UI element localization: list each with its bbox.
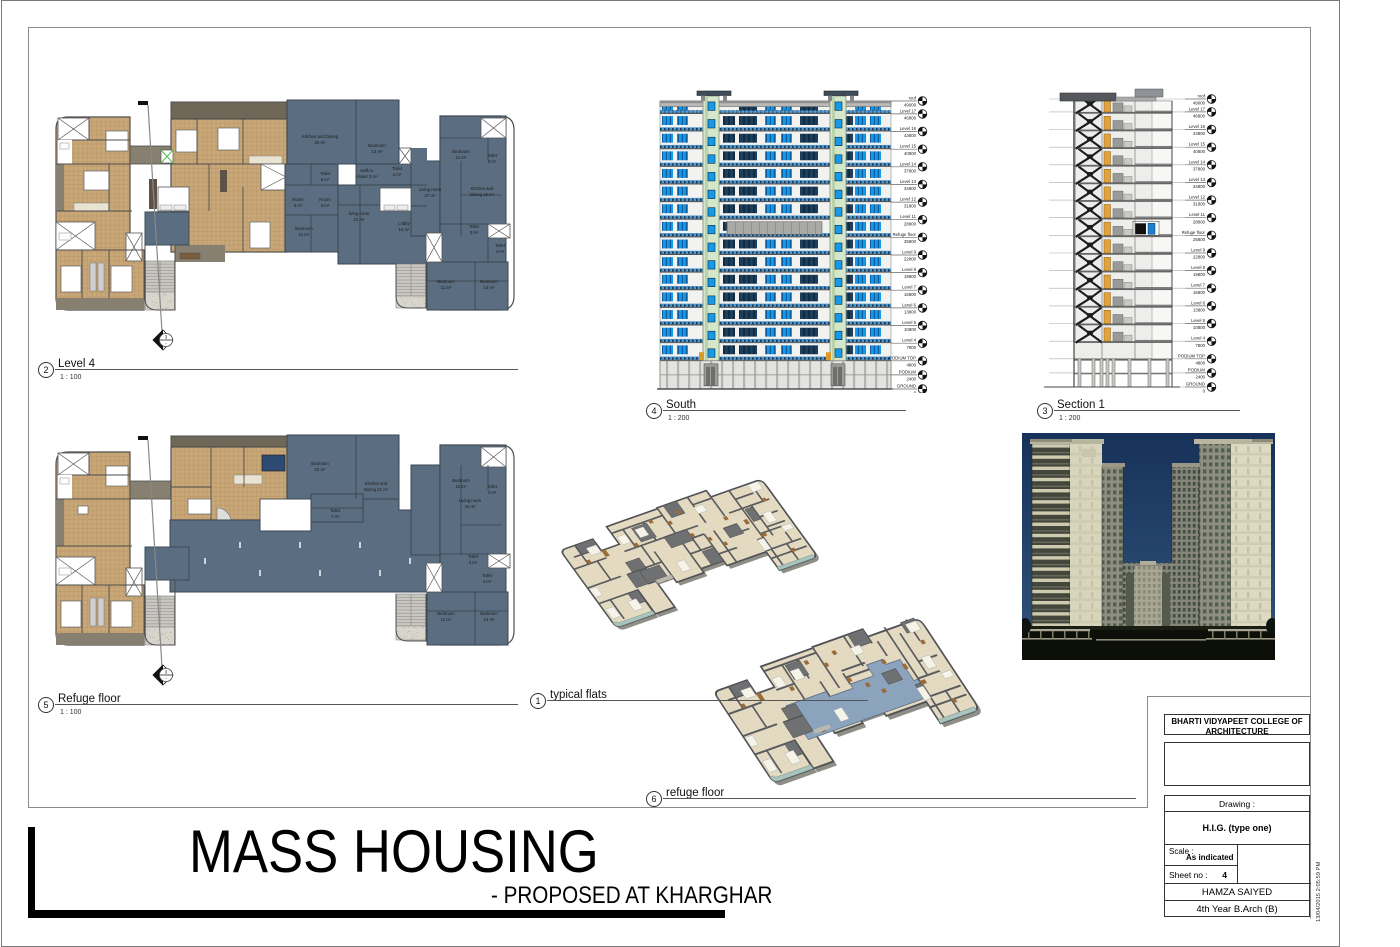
svg-text:10 m²: 10 m²	[399, 227, 411, 232]
svg-text:Level 15: Level 15	[1189, 142, 1206, 147]
svg-text:Level 11: Level 11	[900, 214, 917, 219]
svg-text:roof: roof	[1198, 94, 1206, 99]
svg-text:2: 2	[43, 365, 48, 375]
svg-text:Level 4: Level 4	[1191, 336, 1205, 341]
svg-text:44 m²: 44 m²	[465, 504, 477, 509]
svg-text:Level 5: Level 5	[902, 320, 916, 325]
svg-text:11 m²: 11 m²	[456, 155, 467, 160]
svg-text:Living room: Living room	[459, 498, 482, 503]
svg-text:25800: 25800	[904, 239, 917, 244]
svg-text:25800: 25800	[1193, 237, 1206, 242]
svg-text:16800: 16800	[904, 292, 917, 297]
svg-text:refuge floor: refuge floor	[666, 787, 724, 799]
svg-text:0: 0	[1203, 389, 1206, 393]
svg-text:Bedroom: Bedroom	[295, 226, 313, 231]
svg-text:Toilet: Toilet	[469, 224, 480, 229]
svg-text:Bedroom: Bedroom	[452, 478, 470, 483]
svg-text:28800: 28800	[1193, 219, 1206, 224]
svg-text:Level 6: Level 6	[1191, 300, 1205, 305]
svg-text:PODIUM: PODIUM	[1188, 367, 1206, 372]
svg-text:4 m²: 4 m²	[483, 579, 492, 584]
svg-text:Level 5: Level 5	[1191, 318, 1205, 323]
svg-text:Level 17: Level 17	[1189, 106, 1206, 111]
svg-text:Toilet: Toilet	[487, 484, 498, 489]
svg-text:4800: 4800	[906, 362, 916, 367]
svg-text:roof: roof	[909, 96, 917, 101]
svg-text:40800: 40800	[1193, 149, 1206, 154]
svg-text:23 m²: 23 m²	[315, 467, 327, 472]
svg-text:5 m²: 5 m²	[321, 177, 330, 182]
svg-text:1: 1	[535, 696, 540, 706]
svg-text:Bedroom: Bedroom	[311, 461, 329, 466]
svg-text:Level 17: Level 17	[900, 108, 917, 113]
svg-text:13800: 13800	[1193, 308, 1206, 313]
svg-text:Level 9: Level 9	[902, 250, 916, 255]
svg-text:46800: 46800	[1193, 114, 1206, 119]
svg-text:2400: 2400	[1195, 375, 1205, 380]
svg-text:7800: 7800	[1195, 343, 1205, 348]
svg-text:16800: 16800	[1193, 290, 1206, 295]
svg-text:10800: 10800	[1193, 325, 1206, 330]
svg-text:Bedroom: Bedroom	[480, 611, 498, 616]
svg-text:Room: Room	[292, 197, 304, 202]
svg-text:3 m²: 3 m²	[470, 230, 479, 235]
svg-text:11 m²: 11 m²	[441, 617, 452, 622]
svg-text:1 : 200: 1 : 200	[668, 415, 690, 422]
svg-text:Toilet: Toilet	[487, 153, 498, 158]
svg-text:49000: 49000	[904, 103, 917, 108]
svg-text:10800: 10800	[904, 327, 917, 332]
svg-text:Level 7: Level 7	[1191, 283, 1205, 288]
svg-text:Section 1: Section 1	[1057, 399, 1105, 411]
svg-text:Toilet: Toilet	[330, 508, 341, 513]
svg-text:31800: 31800	[1193, 202, 1206, 207]
svg-text:Level 7: Level 7	[902, 285, 916, 290]
svg-text:3 m²: 3 m²	[488, 159, 497, 164]
svg-text:typical flats: typical flats	[550, 689, 607, 701]
svg-text:Living room: Living room	[419, 187, 442, 192]
svg-text:22800: 22800	[904, 257, 917, 262]
svg-text:Kitchen and: Kitchen and	[471, 186, 494, 191]
svg-text:0: 0	[914, 391, 917, 393]
svg-text:2400: 2400	[906, 377, 916, 382]
svg-text:Level 12: Level 12	[900, 197, 917, 202]
svg-text:34800: 34800	[1193, 184, 1206, 189]
svg-text:13800: 13800	[904, 310, 917, 315]
svg-text:11 m²: 11 m²	[441, 285, 452, 290]
svg-text:Dining 16 m²: Dining 16 m²	[470, 192, 495, 197]
svg-text:11 m²: 11 m²	[456, 484, 467, 489]
svg-text:5: 5	[43, 700, 48, 710]
svg-text:Room: Room	[319, 197, 331, 202]
svg-text:Level 14: Level 14	[1189, 159, 1206, 164]
svg-text:4800: 4800	[1195, 360, 1205, 365]
svg-text:1 : 200: 1 : 200	[1059, 415, 1081, 422]
svg-text:South: South	[666, 399, 696, 411]
svg-text:1 : 100: 1 : 100	[60, 374, 82, 381]
svg-text:19800: 19800	[1193, 272, 1206, 277]
svg-text:PODIUM: PODIUM	[899, 369, 917, 374]
svg-text:28800: 28800	[904, 221, 917, 226]
svg-text:Refuge floor: Refuge floor	[1182, 230, 1206, 235]
svg-text:Toilet: Toilet	[482, 573, 493, 578]
svg-text:22800: 22800	[1193, 255, 1206, 260]
svg-text:3 m²: 3 m²	[321, 203, 330, 208]
svg-text:14 m²: 14 m²	[484, 617, 496, 622]
svg-text:Dining 21 m²: Dining 21 m²	[364, 487, 389, 492]
svg-text:4 m²: 4 m²	[496, 249, 505, 254]
svg-text:Level 12: Level 12	[1189, 195, 1206, 200]
svg-text:Bedroom: Bedroom	[437, 611, 455, 616]
svg-text:Bedroom: Bedroom	[480, 279, 498, 284]
svg-text:Level 8: Level 8	[1191, 265, 1205, 270]
svg-text:walk in: walk in	[360, 168, 374, 173]
svg-text:1 : 100: 1 : 100	[60, 709, 82, 716]
svg-text:Bedroom: Bedroom	[452, 149, 470, 154]
svg-text:living room: living room	[349, 211, 370, 216]
svg-text:GROUND: GROUND	[1186, 382, 1205, 387]
svg-text:26 m²: 26 m²	[315, 140, 327, 145]
svg-text:closet 3 m²: closet 3 m²	[356, 174, 378, 179]
svg-text:43800: 43800	[904, 133, 917, 138]
svg-text:40800: 40800	[904, 151, 917, 156]
svg-text:14 m²: 14 m²	[484, 285, 496, 290]
svg-text:Toilet: Toilet	[468, 554, 479, 559]
svg-text:Level 16: Level 16	[900, 126, 917, 131]
svg-text:Kitchen and Dining: Kitchen and Dining	[302, 134, 339, 139]
svg-text:3 m²: 3 m²	[294, 203, 303, 208]
svg-text:Level 4: Level 4	[58, 358, 96, 370]
svg-text:Lobby: Lobby	[398, 221, 411, 226]
svg-text:Level 6: Level 6	[902, 302, 916, 307]
svg-text:31800: 31800	[904, 204, 917, 209]
svg-text:Toilet: Toilet	[495, 243, 506, 248]
svg-text:43800: 43800	[1193, 131, 1206, 136]
svg-text:Level 8: Level 8	[902, 267, 916, 272]
svg-text:Level 16: Level 16	[1189, 124, 1206, 129]
svg-text:Bedroom: Bedroom	[437, 279, 455, 284]
svg-text:21 m²: 21 m²	[354, 217, 366, 222]
svg-text:Refuge floor: Refuge floor	[58, 693, 121, 705]
svg-text:49000: 49000	[1193, 101, 1206, 106]
svg-text:19800: 19800	[904, 274, 917, 279]
svg-text:Level 11: Level 11	[1189, 212, 1206, 217]
svg-text:13 m²: 13 m²	[372, 149, 384, 154]
svg-text:Level 4: Level 4	[902, 338, 916, 343]
svg-text:7 m²: 7 m²	[331, 514, 340, 519]
svg-text:Level 15: Level 15	[900, 144, 917, 149]
svg-text:Kitchen and: Kitchen and	[365, 481, 388, 486]
svg-text:34800: 34800	[904, 186, 917, 191]
svg-text:Level 9: Level 9	[1191, 248, 1205, 253]
svg-text:Level 13: Level 13	[1189, 177, 1206, 182]
svg-text:6: 6	[651, 794, 656, 804]
svg-text:37800: 37800	[1193, 166, 1206, 171]
svg-text:4 m²: 4 m²	[393, 172, 402, 177]
svg-text:46800: 46800	[904, 116, 917, 121]
svg-text:Toilet: Toilet	[392, 166, 403, 171]
svg-text:4: 4	[651, 406, 656, 416]
svg-text:Toilet: Toilet	[320, 171, 331, 176]
svg-text:PODIUM TOP: PODIUM TOP	[1178, 353, 1205, 358]
svg-text:Bedroom: Bedroom	[368, 143, 386, 148]
svg-text:PODIUM TOP: PODIUM TOP	[889, 355, 916, 360]
svg-text:Refuge floor: Refuge floor	[893, 232, 917, 237]
svg-text:GROUND: GROUND	[897, 384, 916, 389]
svg-text:3: 3	[1042, 406, 1047, 416]
svg-text:3 m²: 3 m²	[488, 490, 497, 495]
svg-text:37800: 37800	[904, 168, 917, 173]
svg-text:Level 14: Level 14	[900, 161, 917, 166]
svg-text:7800: 7800	[906, 345, 916, 350]
svg-text:3 m²: 3 m²	[469, 560, 478, 565]
svg-text:Level 13: Level 13	[900, 179, 917, 184]
svg-text:11 m²: 11 m²	[299, 232, 310, 237]
svg-text:27 m²: 27 m²	[425, 193, 437, 198]
